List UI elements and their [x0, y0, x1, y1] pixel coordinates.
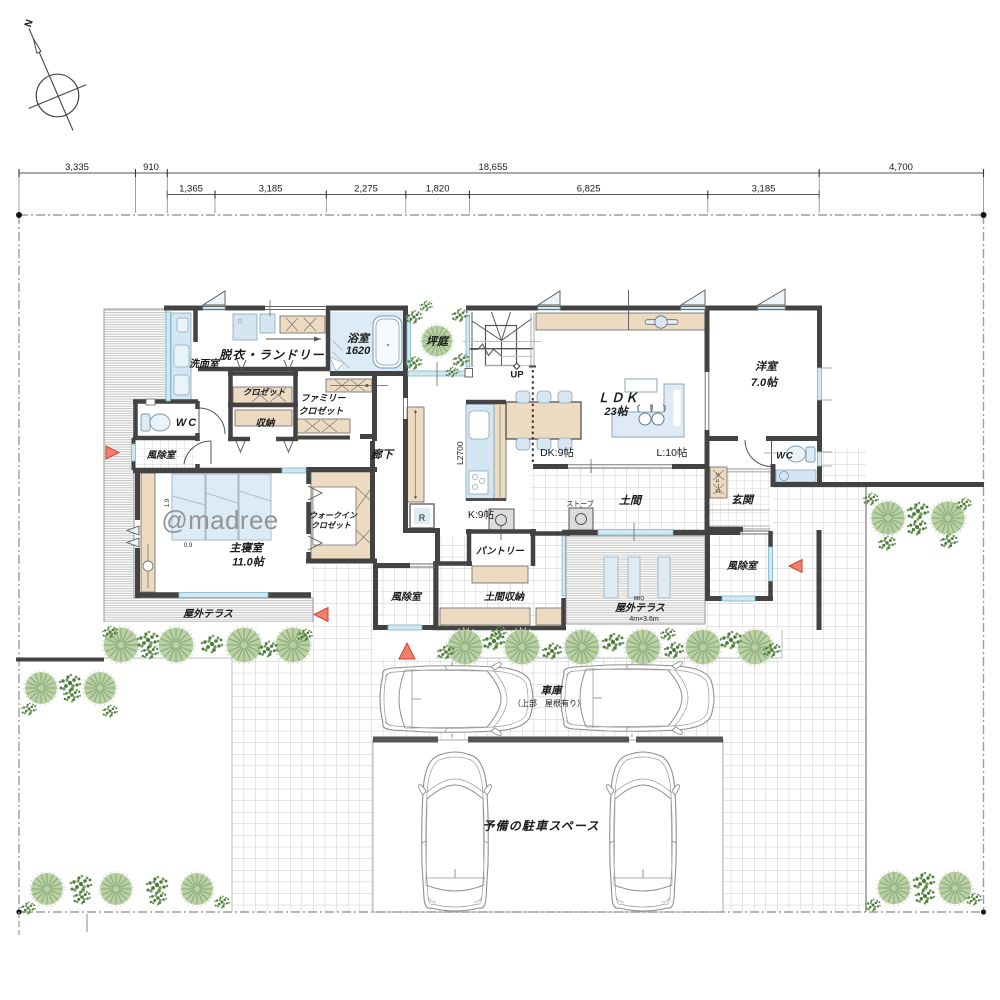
svg-text:WC: WC: [776, 451, 794, 462]
svg-text:屋外テラス: 屋外テラス: [182, 608, 233, 620]
svg-text:0.9: 0.9: [184, 543, 193, 549]
svg-text:ストーブ: ストーブ: [566, 499, 594, 508]
svg-text:坪庭: 坪庭: [426, 335, 450, 348]
svg-text:R: R: [419, 513, 426, 523]
svg-text:23帖: 23帖: [603, 405, 629, 418]
svg-text:車庫: 車庫: [541, 684, 564, 697]
svg-text:2,275: 2,275: [354, 184, 378, 195]
svg-text:WC: WC: [176, 417, 198, 429]
svg-text:クロゼット: クロゼット: [243, 387, 286, 397]
svg-text:DK:9帖: DK:9帖: [540, 446, 574, 459]
svg-text:3,185: 3,185: [752, 184, 776, 195]
svg-text:洋室: 洋室: [755, 360, 779, 373]
svg-text:洗面室: 洗面室: [189, 358, 221, 370]
svg-text:1620: 1620: [346, 345, 371, 357]
svg-text:廊下: 廊下: [370, 448, 395, 461]
svg-text:ウォークイン: ウォークイン: [309, 511, 358, 520]
svg-text:土間収納: 土間収納: [484, 591, 526, 603]
svg-text:@madree: @madree: [161, 505, 278, 535]
svg-text:脱衣・ランドリー: 脱衣・ランドリー: [218, 348, 325, 362]
svg-text:屋外テラス: 屋外テラス: [614, 602, 665, 614]
svg-text:L2700: L2700: [455, 441, 465, 465]
svg-text:1,365: 1,365: [179, 184, 203, 195]
svg-text:4m×3.6m: 4m×3.6m: [629, 616, 659, 623]
svg-text:クロゼット: クロゼット: [311, 521, 351, 530]
svg-text:（上部 屋根有り）: （上部 屋根有り）: [513, 698, 585, 708]
svg-text:風除室: 風除室: [146, 449, 177, 461]
svg-text:土間: 土間: [619, 494, 643, 507]
svg-text:ファミリー: ファミリー: [300, 393, 346, 403]
svg-text:BBQ: BBQ: [634, 596, 645, 602]
svg-text:1,820: 1,820: [426, 184, 450, 195]
svg-text:クロゼット: クロゼット: [298, 406, 343, 416]
svg-text:予備の駐車スペース: 予備の駐車スペース: [482, 819, 599, 833]
svg-text:ＬＤＫ: ＬＤＫ: [597, 391, 639, 405]
svg-text:風除室: 風除室: [726, 560, 759, 572]
svg-text:3,185: 3,185: [259, 184, 283, 195]
svg-text:シューズ: シューズ: [714, 472, 722, 494]
svg-text:UP: UP: [510, 370, 524, 381]
svg-text:収納: 収納: [255, 417, 276, 429]
svg-text:3,335: 3,335: [65, 162, 89, 173]
svg-text:パントリー: パントリー: [476, 546, 524, 557]
svg-text:玄関: 玄関: [731, 494, 755, 507]
svg-text:11.0帖: 11.0帖: [232, 556, 266, 569]
svg-text:1.9: 1.9: [165, 498, 171, 507]
svg-text:910: 910: [143, 162, 159, 173]
svg-text:L:10帖: L:10帖: [657, 446, 688, 459]
svg-text:風除室: 風除室: [390, 591, 423, 603]
svg-text:浴室: 浴室: [347, 332, 371, 345]
svg-text:主寝室: 主寝室: [230, 542, 265, 555]
svg-text:7.0帖: 7.0帖: [751, 376, 779, 389]
svg-text:K:9帖: K:9帖: [468, 508, 495, 521]
svg-text:4,700: 4,700: [889, 162, 913, 173]
svg-text:6,825: 6,825: [577, 184, 601, 195]
svg-text:18,655: 18,655: [478, 162, 507, 173]
